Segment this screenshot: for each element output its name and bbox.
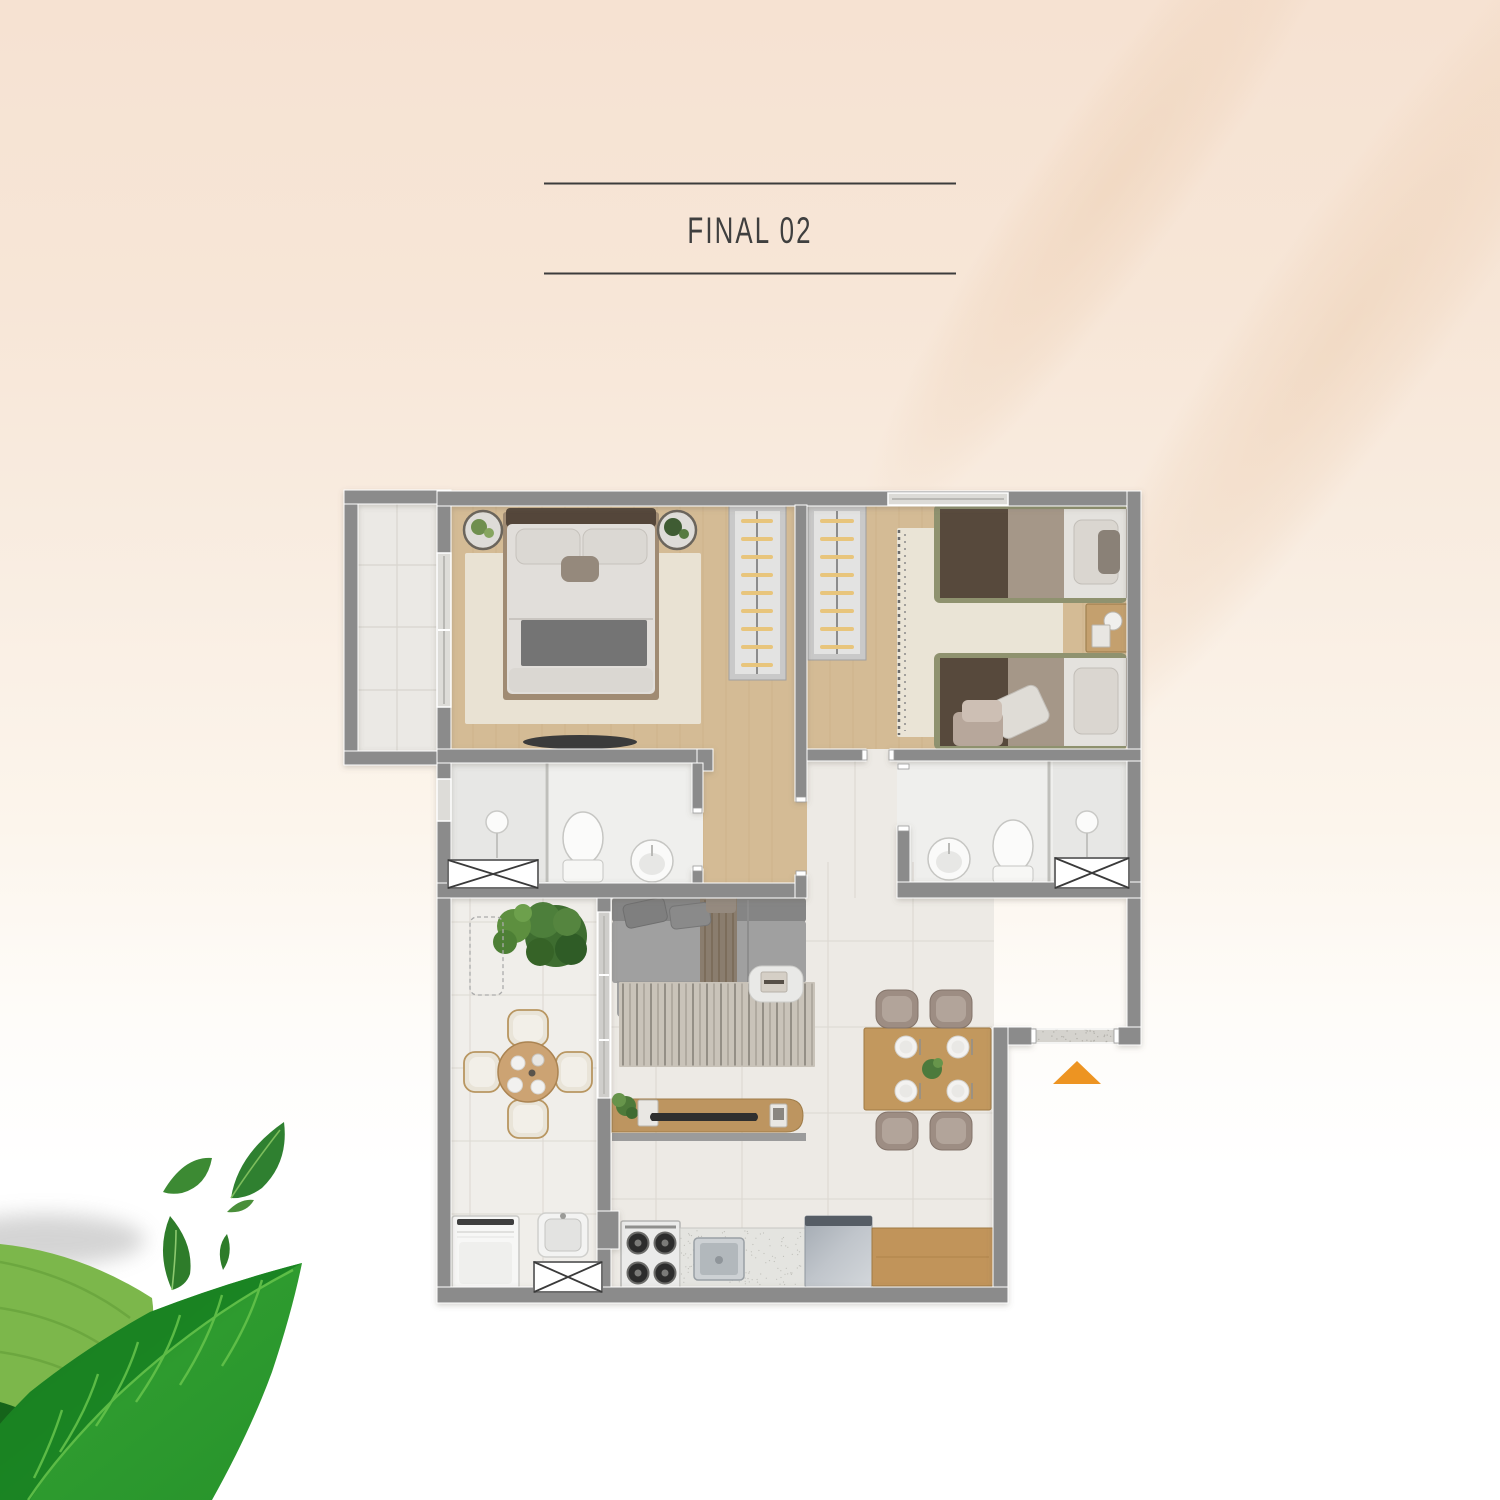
svg-text:FINAL 02: FINAL 02 <box>687 209 812 251</box>
